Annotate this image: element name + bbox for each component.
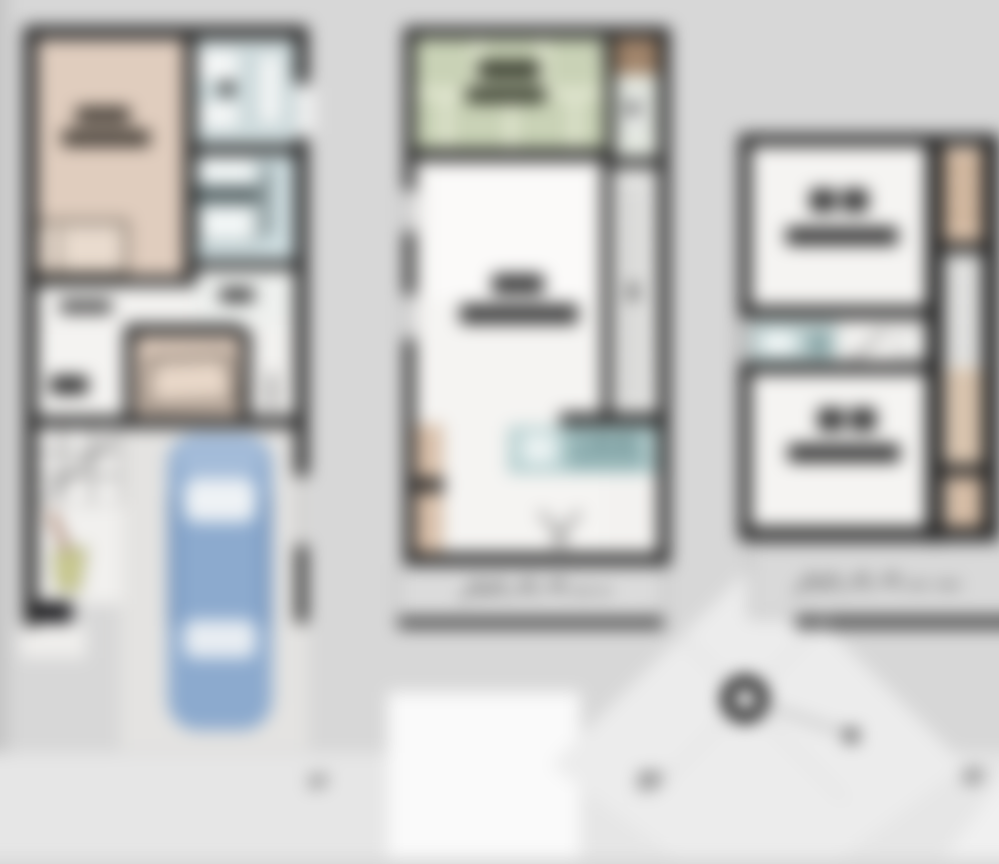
- svg-text:1F: 1F: [308, 772, 328, 791]
- svg-text:3F: 3F: [963, 767, 984, 787]
- svg-text:2F: 2F: [637, 768, 663, 793]
